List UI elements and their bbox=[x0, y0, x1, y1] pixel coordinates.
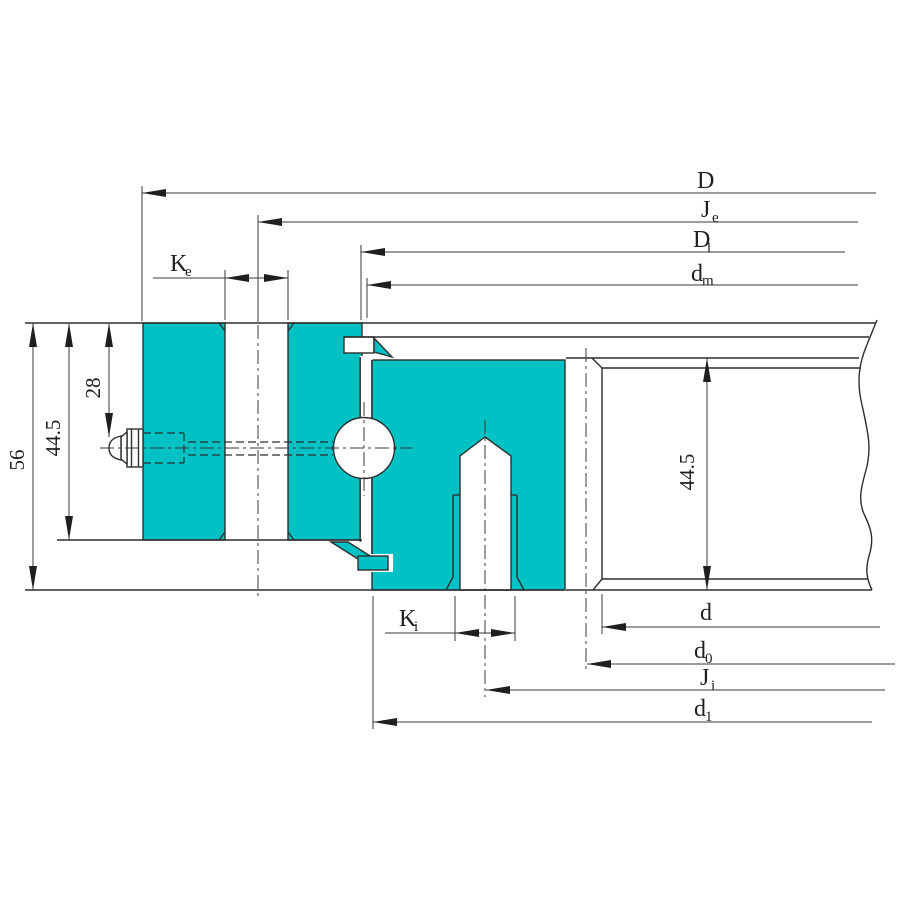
dim-56 bbox=[29, 323, 37, 590]
label-D1-sub: 1 bbox=[705, 240, 713, 256]
outer-ring-left-section bbox=[143, 323, 225, 540]
label-44-5-left: 44.5 bbox=[41, 420, 65, 457]
top-seal-lip bbox=[374, 338, 392, 357]
dim-44-5-left bbox=[65, 323, 73, 540]
label-Ji-main: J bbox=[700, 665, 709, 691]
dim-Je bbox=[258, 218, 858, 226]
label-D: D bbox=[697, 168, 714, 194]
label-Ke-sub: e bbox=[185, 264, 192, 280]
technical-drawing-canvas: D J e D 1 d m K e K i d d 0 J i d 1 56 4… bbox=[0, 0, 900, 900]
dim-D bbox=[142, 189, 876, 197]
shaft-bottom-chamfer bbox=[593, 579, 602, 590]
dim-dm bbox=[367, 281, 858, 289]
label-dm-sub: m bbox=[702, 273, 714, 289]
label-56: 56 bbox=[5, 450, 29, 471]
dim-D1 bbox=[361, 248, 845, 256]
label-44-5-right: 44.5 bbox=[675, 454, 699, 491]
dim-44-5-right bbox=[703, 358, 711, 590]
bottom-seal-body bbox=[358, 556, 388, 570]
dim-d0 bbox=[587, 660, 895, 668]
ring-gap-upper bbox=[360, 356, 373, 420]
bearing-cross-section-svg: D J e D 1 d m K e K i d d 0 J i d 1 56 4… bbox=[0, 0, 900, 900]
dim-28 bbox=[105, 323, 113, 437]
top-seal-groove bbox=[344, 337, 374, 353]
break-line bbox=[859, 320, 877, 590]
bolt-hole-chamfers bbox=[219, 323, 294, 540]
label-Je-main: J bbox=[701, 197, 710, 223]
ring-gap-lower bbox=[360, 476, 373, 556]
label-28: 28 bbox=[81, 378, 105, 399]
dim-d1 bbox=[373, 718, 872, 726]
dim-Ji bbox=[486, 686, 885, 694]
label-d: d bbox=[700, 600, 712, 626]
label-d1-sub: 1 bbox=[705, 709, 713, 725]
label-Ji-sub: i bbox=[711, 678, 715, 694]
shaft-top-chamfer bbox=[592, 358, 602, 368]
dim-d bbox=[602, 623, 880, 631]
label-Je-sub: e bbox=[712, 210, 719, 226]
label-Ki-sub: i bbox=[414, 619, 418, 635]
